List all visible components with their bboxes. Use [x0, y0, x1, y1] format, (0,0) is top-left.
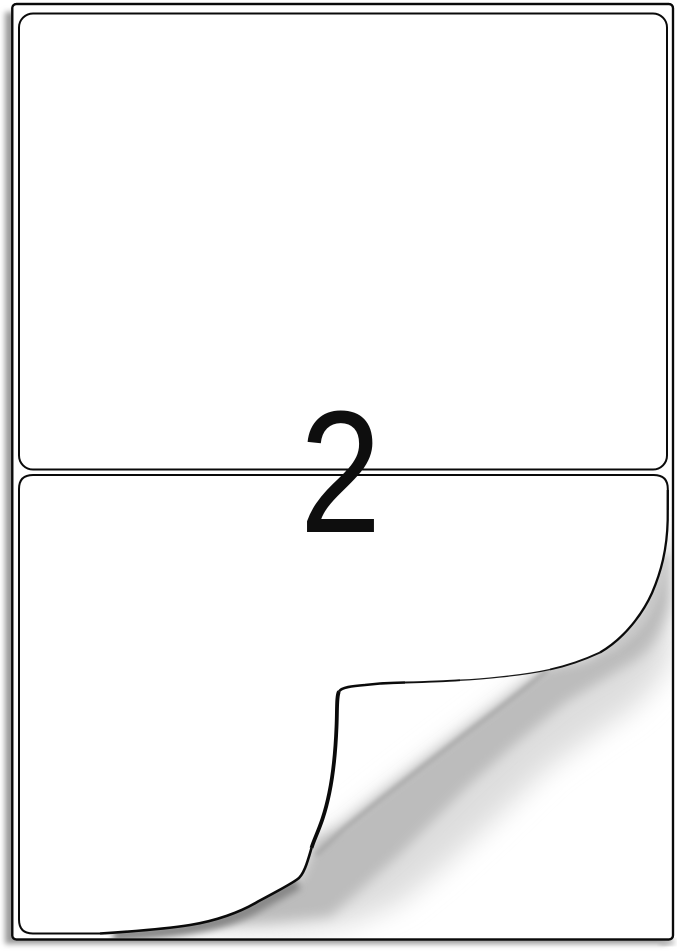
svg-text:2: 2 [300, 375, 382, 570]
